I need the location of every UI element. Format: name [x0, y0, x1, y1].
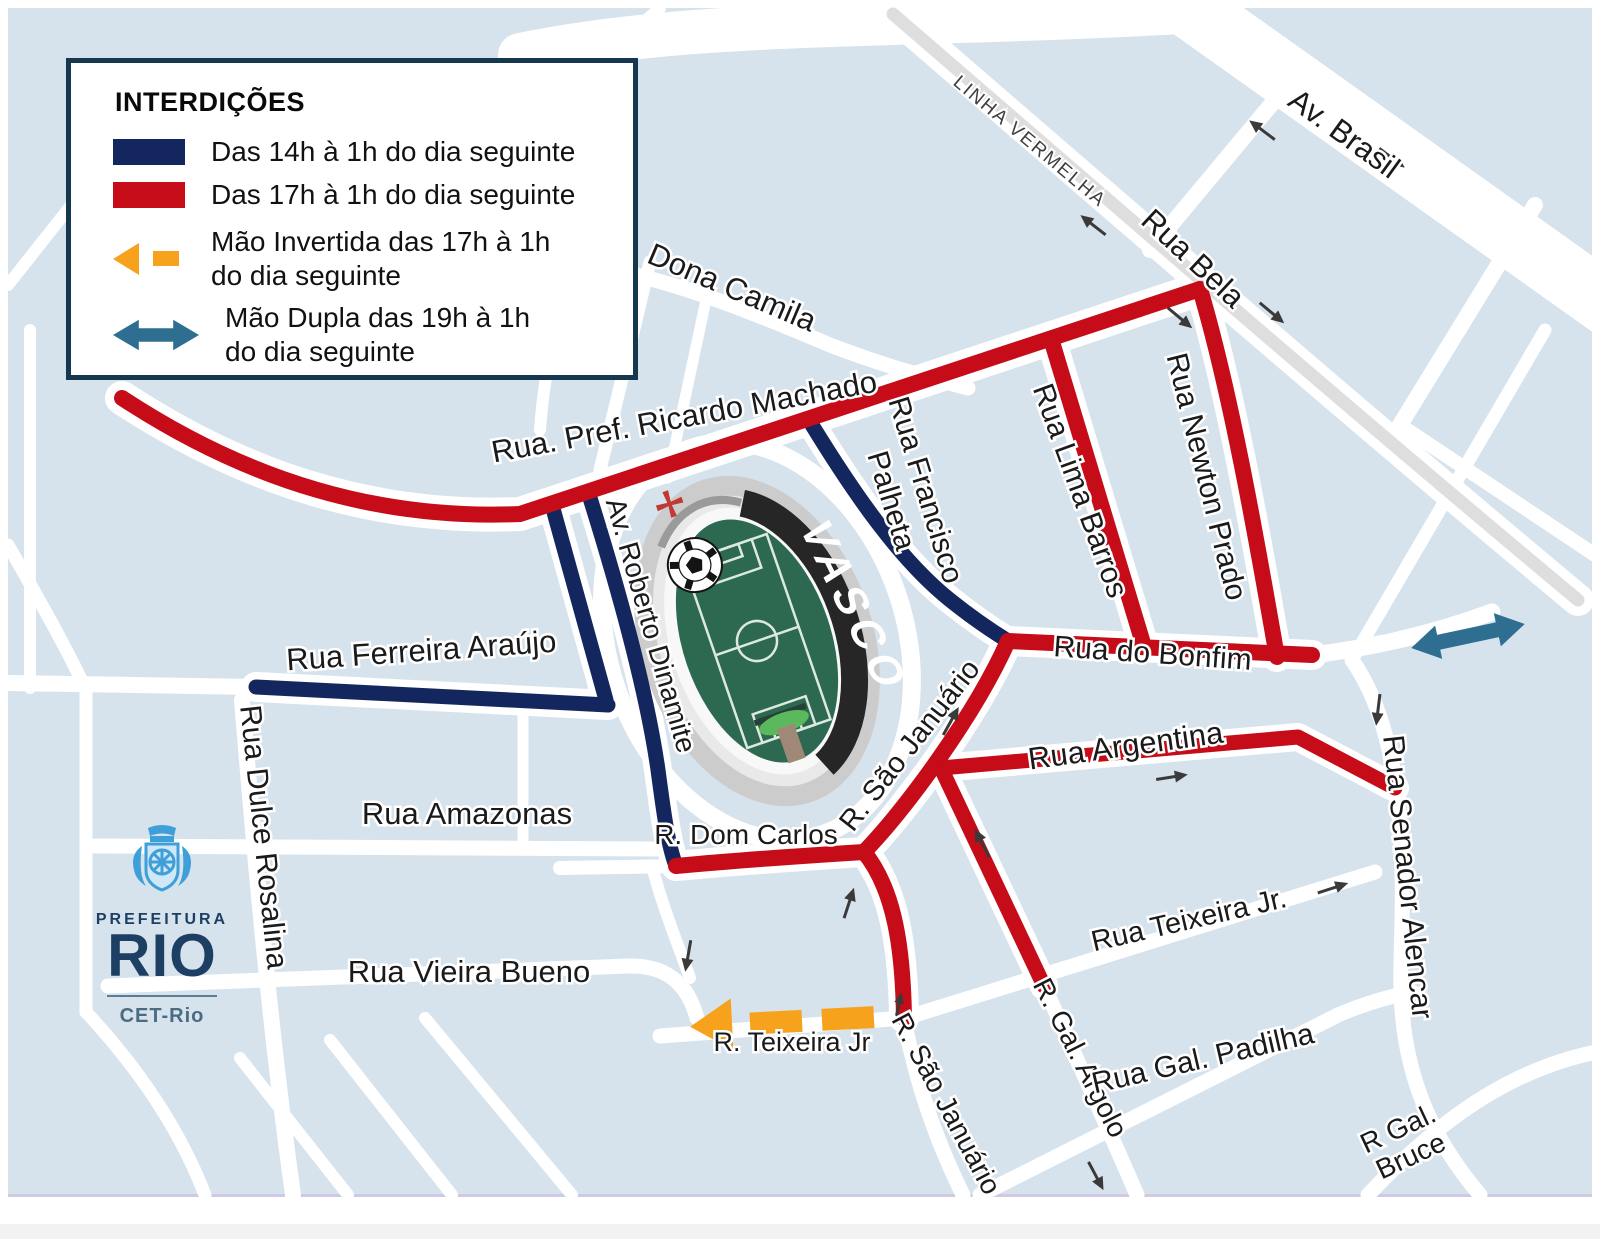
legend-item-mao-invertida-line2: do dia seguinte — [211, 259, 550, 293]
map-bottom-edge — [8, 1194, 1592, 1197]
legend-item-14h-label: Das 14h à 1h do dia seguinte — [211, 135, 575, 169]
legend-item-mao-dupla-line2: do dia seguinte — [225, 335, 530, 369]
legend-item-mao-dupla-line1: Mão Dupla das 19h à 1h — [225, 301, 530, 335]
inverted-flow-legend-arrow-icon — [113, 243, 185, 275]
closure-17h-swatch-icon — [113, 182, 185, 208]
street-label-vieira-bueno: Rua Vieira Bueno — [348, 954, 590, 989]
legend-item-mao-dupla-label: Mão Dupla das 19h à 1h do dia seguinte — [225, 301, 530, 368]
logo-rio-text: RIO — [92, 929, 232, 983]
page-footer-band — [0, 1224, 1600, 1239]
legend-item-mao-invertida-line1: Mão Invertida das 17h à 1h — [211, 225, 550, 259]
prefeitura-rio-logo: PREFEITURA RIO CET-Rio — [92, 822, 232, 1028]
legend-item-mao-dupla: Mão Dupla das 19h à 1h do dia seguinte — [113, 301, 530, 368]
legend-item-17h-label: Das 17h à 1h do dia seguinte — [211, 178, 575, 212]
two-way-legend-arrow-icon — [113, 318, 199, 352]
legend-item-mao-invertida-label: Mão Invertida das 17h à 1h do dia seguin… — [211, 225, 550, 292]
street-label-amazonas: Rua Amazonas — [362, 796, 572, 831]
logo-divider — [107, 995, 217, 997]
legend-box: INTERDIÇÕES Das 14h à 1h do dia seguinte… — [66, 58, 638, 380]
legend-item-mao-invertida: Mão Invertida das 17h à 1h do dia seguin… — [113, 225, 550, 292]
legend-title: INTERDIÇÕES — [115, 87, 305, 118]
street-label-dom-carlos: R. Dom Carlos — [654, 819, 838, 850]
traffic-map-page: VASCO — [0, 0, 1600, 1239]
street-label-teixeira-jr-lower: R. Teixeira Jr — [713, 1027, 870, 1057]
logo-cetrio-text: CET-Rio — [92, 1005, 232, 1028]
rio-crest-icon — [120, 822, 204, 902]
legend-item-17h: Das 17h à 1h do dia seguinte — [113, 178, 575, 212]
legend-item-14h: Das 14h à 1h do dia seguinte — [113, 135, 575, 169]
closure-14h-swatch-icon — [113, 139, 185, 165]
